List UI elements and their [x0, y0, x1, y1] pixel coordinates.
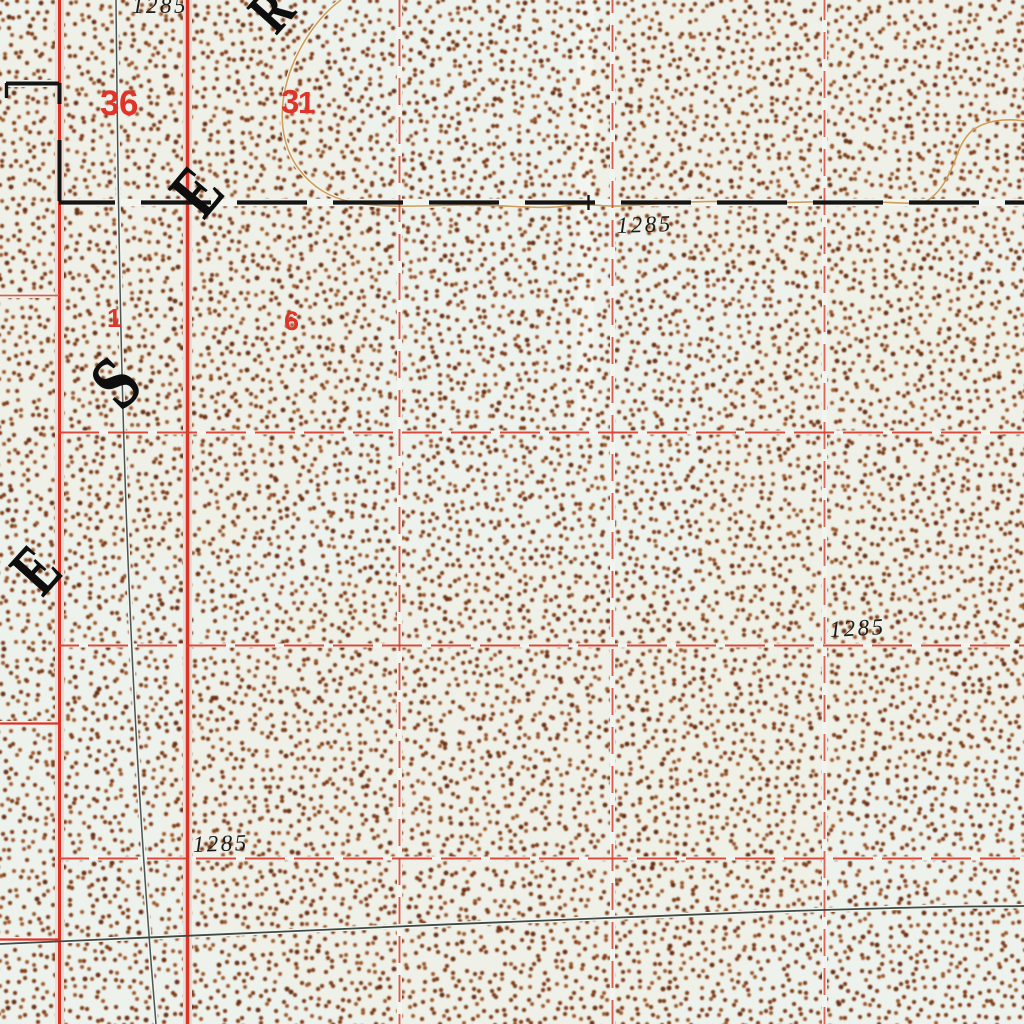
svg-text:1285: 1285 [192, 830, 249, 857]
svg-text:3: 3 [100, 84, 119, 123]
svg-text:6: 6 [284, 306, 299, 336]
svg-text:1: 1 [298, 85, 315, 120]
svg-text:6: 6 [119, 84, 138, 123]
svg-text:1285: 1285 [616, 211, 673, 238]
svg-text:1285: 1285 [829, 614, 886, 642]
svg-text:1285: 1285 [132, 0, 188, 18]
svg-text:3: 3 [281, 83, 299, 120]
svg-text:1: 1 [107, 303, 121, 333]
